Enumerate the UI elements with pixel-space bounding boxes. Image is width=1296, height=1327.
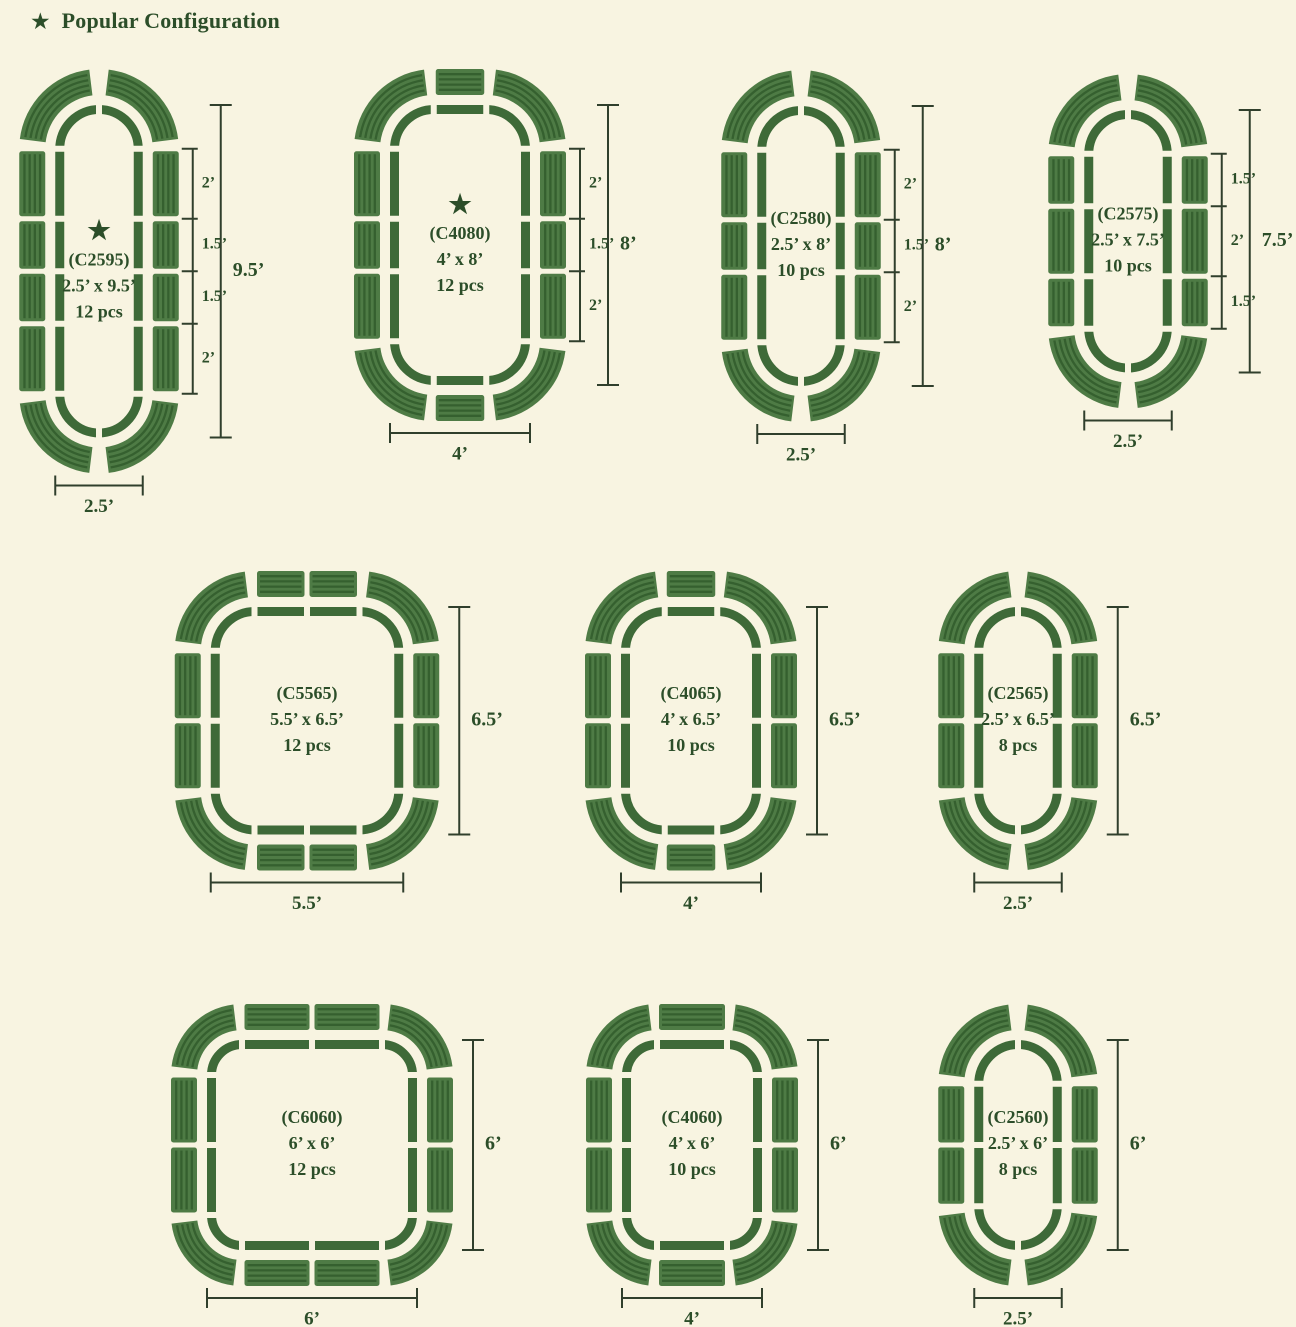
config-C2565: 6.5’2.5’(C2565)2.5’ x 6.5’8 pcs [938, 572, 1161, 914]
height-dimension-label: 6’ [830, 1133, 847, 1155]
config-size-label: 4’ x 6.5’ [661, 709, 721, 729]
segment-length-label: 1.5’ [202, 236, 227, 253]
bed-outline [60, 110, 139, 434]
bed-panel [153, 151, 179, 216]
bed-panel [586, 1078, 612, 1143]
config-code-label: (C2580) [771, 208, 832, 229]
bed-panel [855, 275, 881, 340]
bed-panel [427, 1078, 453, 1143]
popular-star-icon: ★ [448, 190, 472, 219]
bed-panel [153, 274, 179, 322]
bed-panel [171, 1078, 197, 1143]
bed-panel [354, 151, 380, 216]
bed-outline [395, 110, 526, 381]
segment-length-label: 2’ [904, 298, 917, 315]
config-size-label: 2.5’ x 8’ [771, 234, 831, 254]
height-dimension-label: 6’ [1130, 1133, 1147, 1155]
bed-panel [175, 653, 201, 718]
config-pieces-label: 10 pcs [668, 1159, 716, 1179]
bed-panel [1048, 209, 1074, 274]
bed-corner-panel [172, 1220, 237, 1285]
bed-panel [257, 845, 305, 871]
bed-panel [721, 152, 747, 217]
config-pieces-label: 12 pcs [75, 301, 123, 321]
config-C4065: 6.5’4’(C4065)4’ x 6.5’10 pcs [585, 571, 861, 914]
width-dimension-label: 4’ [684, 1308, 700, 1327]
config-code-label: (C2560) [988, 1107, 1049, 1128]
bed-panel [855, 152, 881, 217]
bed-panel [1182, 156, 1208, 204]
bed-panel [257, 571, 305, 597]
config-size-label: 5.5’ x 6.5’ [270, 709, 344, 729]
bed-panel [19, 274, 45, 322]
page-title: Popular Configuration [62, 8, 280, 34]
segment-length-label: 2’ [904, 175, 917, 192]
bed-panel [721, 222, 747, 270]
bed-panel [771, 653, 797, 718]
bed-panel [585, 723, 611, 788]
bed-panel [1072, 653, 1098, 718]
bed-panel [310, 845, 358, 871]
bed-panel [1072, 1148, 1098, 1204]
bed-corner-panel [587, 1220, 652, 1285]
config-code-label: (C4080) [430, 223, 491, 244]
bed-corner-panel [387, 1005, 452, 1070]
config-code-label: (C4065) [661, 683, 722, 704]
bed-panel [938, 1086, 964, 1142]
config-size-label: 2.5’ x 6’ [988, 1133, 1048, 1153]
popular-star-icon: ★ [87, 216, 111, 245]
bed-panel [354, 274, 380, 339]
config-C2560: 6’2.5’(C2560)2.5’ x 6’8 pcs [938, 1005, 1146, 1327]
config-C6060: 6’6’(C6060)6’ x 6’12 pcs [171, 1004, 502, 1327]
bed-panel [19, 151, 45, 216]
bed-corner-panel [172, 1005, 237, 1070]
segment-length-label: 1.5’ [1231, 171, 1256, 188]
bed-panel [1182, 209, 1208, 274]
config-size-label: 4’ x 8’ [437, 249, 484, 269]
bed-panel [659, 1260, 725, 1286]
bed-panel [540, 221, 566, 269]
config-pieces-label: 8 pcs [999, 735, 1038, 755]
config-pieces-label: 10 pcs [1104, 255, 1152, 275]
width-dimension-label: 2.5’ [786, 444, 816, 465]
config-pieces-label: 12 pcs [436, 275, 484, 295]
bed-panel [310, 571, 358, 597]
bed-panel [1072, 1086, 1098, 1142]
height-dimension-label: 6.5’ [471, 708, 503, 730]
bed-corner-panel [587, 1005, 652, 1070]
bed-panel [153, 326, 179, 391]
bed-panel [540, 151, 566, 216]
config-pieces-label: 8 pcs [999, 1159, 1038, 1179]
config-pieces-label: 10 pcs [667, 735, 715, 755]
bed-panel [540, 274, 566, 339]
width-dimension-label: 4’ [452, 443, 468, 464]
config-C5565: 6.5’5.5’(C5565)5.5’ x 6.5’12 pcs [175, 571, 503, 914]
segment-length-label: 1.5’ [589, 236, 614, 253]
bed-panel [721, 275, 747, 340]
config-code-label: (C6060) [282, 1107, 343, 1128]
bed-panel [855, 222, 881, 270]
bed-panel [436, 395, 485, 421]
star-icon: ★ [30, 10, 51, 33]
config-size-label: 4’ x 6’ [669, 1133, 716, 1153]
width-dimension-label: 2.5’ [1003, 1308, 1033, 1327]
bed-corner-panel [387, 1220, 452, 1285]
config-pieces-label: 12 pcs [283, 735, 331, 755]
config-code-label: (C2595) [69, 249, 130, 270]
height-dimension-label: 7.5’ [1262, 229, 1294, 251]
height-dimension-label: 6.5’ [829, 708, 861, 730]
segment-length-label: 1.5’ [904, 237, 929, 254]
height-dimension-label: 8’ [620, 233, 637, 255]
width-dimension-label: 6’ [304, 1308, 320, 1327]
bed-panel [771, 723, 797, 788]
bed-panel [427, 1148, 453, 1213]
config-pieces-label: 10 pcs [777, 260, 825, 280]
bed-panel [171, 1148, 197, 1213]
config-C2575: 1.5’2’1.5’7.5’2.5’(C2575)2.5’ x 7.5’10 p… [1048, 75, 1293, 452]
bed-panel [413, 653, 439, 718]
height-dimension-label: 6’ [485, 1133, 502, 1155]
legend-header: ★ Popular Configuration [30, 8, 280, 34]
segment-length-label: 1.5’ [202, 288, 227, 305]
bed-panel [585, 653, 611, 718]
height-dimension-label: 8’ [935, 234, 952, 256]
bed-panel [1048, 279, 1074, 327]
bed-panel [659, 1004, 725, 1030]
config-size-label: 2.5’ x 7.5’ [1091, 229, 1165, 249]
bed-panel [1072, 723, 1098, 788]
width-dimension-label: 2.5’ [1113, 431, 1143, 452]
bed-panel [315, 1260, 380, 1286]
config-size-label: 6’ x 6’ [289, 1133, 336, 1153]
segment-length-label: 2’ [202, 349, 215, 366]
page: ★ Popular Configuration 2’1.5’1.5’2’9.5’… [0, 0, 1296, 1327]
config-size-label: 2.5’ x 9.5’ [62, 275, 136, 295]
configurations-canvas: 2’1.5’1.5’2’9.5’2.5’★(C2595)2.5’ x 9.5’1… [0, 0, 1296, 1327]
bed-panel [586, 1148, 612, 1213]
bed-corner-panel [732, 1005, 797, 1070]
bed-panel [245, 1260, 310, 1286]
segment-length-label: 2’ [1231, 232, 1244, 249]
bed-panel [772, 1148, 798, 1213]
bed-panel [354, 221, 380, 269]
bed-panel [938, 653, 964, 718]
config-C2595: 2’1.5’1.5’2’9.5’2.5’★(C2595)2.5’ x 9.5’1… [19, 70, 264, 517]
bed-panel [938, 723, 964, 788]
segment-length-label: 1.5’ [1231, 293, 1256, 310]
bed-panel [1182, 279, 1208, 327]
width-dimension-label: 2.5’ [1003, 893, 1033, 914]
width-dimension-label: 2.5’ [84, 496, 114, 517]
segment-length-label: 2’ [589, 174, 602, 191]
bed-panel [772, 1078, 798, 1143]
bed-panel [667, 845, 716, 871]
bed-panel [413, 723, 439, 788]
config-code-label: (C5565) [277, 683, 338, 704]
bed-panel [245, 1004, 310, 1030]
segment-length-label: 2’ [589, 297, 602, 314]
config-code-label: (C2565) [988, 683, 1049, 704]
config-code-label: (C2575) [1098, 203, 1159, 224]
config-C2580: 2’1.5’2’8’2.5’(C2580)2.5’ x 8’10 pcs [721, 71, 951, 466]
config-pieces-label: 12 pcs [288, 1159, 336, 1179]
bed-panel [938, 1148, 964, 1204]
bed-panel [19, 221, 45, 269]
bed-panel [19, 326, 45, 391]
segment-length-label: 2’ [202, 174, 215, 191]
bed-panel [153, 221, 179, 269]
width-dimension-label: 5.5’ [292, 893, 322, 914]
config-C4080: 2’1.5’2’8’4’★(C4080)4’ x 8’12 pcs [354, 69, 637, 464]
bed-panel [175, 723, 201, 788]
width-dimension-label: 4’ [683, 893, 699, 914]
config-code-label: (C4060) [662, 1107, 723, 1128]
bed-panel [1048, 156, 1074, 204]
height-dimension-label: 9.5’ [233, 259, 265, 281]
bed-corner-panel [732, 1220, 797, 1285]
bed-panel [436, 69, 485, 95]
config-C4060: 6’4’(C4060)4’ x 6’10 pcs [586, 1004, 847, 1327]
height-dimension-label: 6.5’ [1130, 708, 1162, 730]
bed-panel [315, 1004, 380, 1030]
bed-panel [667, 571, 716, 597]
config-size-label: 2.5’ x 6.5’ [981, 709, 1055, 729]
